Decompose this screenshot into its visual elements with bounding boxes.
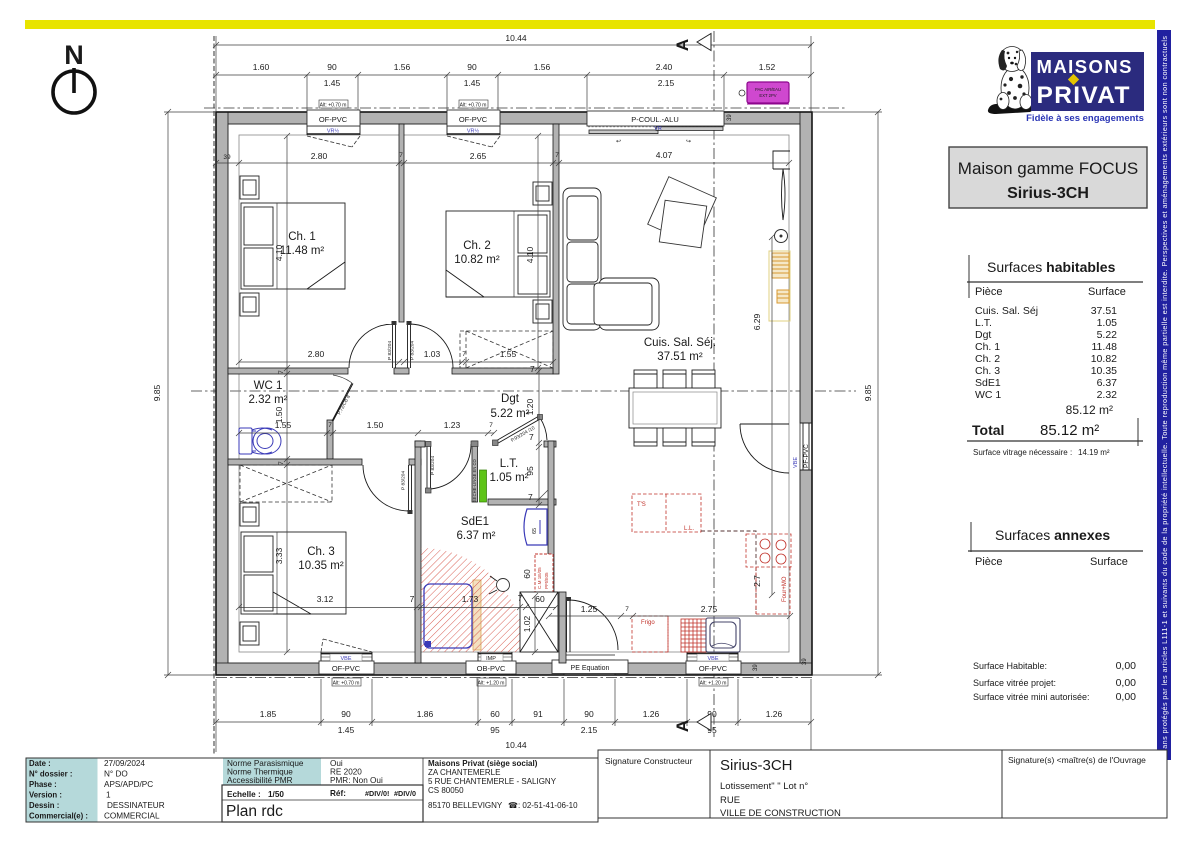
svg-text:7: 7: [328, 422, 332, 429]
svg-text:2.32 m²: 2.32 m²: [249, 394, 288, 406]
svg-text:7: 7: [489, 422, 493, 429]
svg-text:60: 60: [535, 594, 545, 604]
svg-text:1.85: 1.85: [260, 709, 277, 719]
svg-text:PRIVAT: PRIVAT: [1037, 82, 1130, 109]
svg-text:COMMERCIAL: COMMERCIAL: [104, 812, 160, 821]
svg-text:1.45: 1.45: [324, 78, 341, 88]
svg-text:0,00: 0,00: [1116, 660, 1137, 672]
svg-text:SdE1: SdE1: [461, 516, 489, 528]
svg-text:1.55: 1.55: [500, 349, 517, 359]
svg-text:85.12 m²: 85.12 m²: [1040, 422, 1099, 439]
svg-text:Surface vitrage nécessaire :: Surface vitrage nécessaire :: [973, 448, 1072, 457]
svg-text:RUE: RUE: [720, 795, 740, 806]
svg-text:10.82: 10.82: [1091, 353, 1117, 365]
svg-text:5.22: 5.22: [1097, 329, 1118, 341]
svg-text:14.19 m²: 14.19 m²: [1078, 448, 1110, 457]
svg-text:Ch. 3: Ch. 3: [975, 365, 1000, 377]
svg-text:PE Equation: PE Equation: [571, 665, 610, 672]
svg-text:PMR: Non Oui: PMR: Non Oui: [330, 776, 383, 785]
svg-text:95: 95: [490, 725, 500, 735]
svg-text:N° DO: N° DO: [104, 770, 128, 779]
svg-text:OF-PVC: OF-PVC: [332, 664, 361, 673]
svg-text:1.56: 1.56: [534, 62, 551, 72]
svg-text:2.32: 2.32: [1097, 389, 1118, 401]
svg-text:9.85: 9.85: [863, 384, 873, 401]
svg-text:7: 7: [555, 152, 559, 159]
svg-text:3.33: 3.33: [274, 547, 284, 564]
svg-text:Total: Total: [972, 422, 1004, 438]
svg-text:T'S: T'S: [637, 502, 646, 508]
svg-text:10.35: 10.35: [1091, 365, 1117, 377]
svg-text:Frigo: Frigo: [641, 620, 655, 626]
svg-text:Fidèle à ses engagements: Fidèle à ses engagements: [1026, 113, 1144, 124]
svg-text:P 83/204: P 83/204: [387, 341, 393, 360]
svg-text:Surface Habitable:: Surface Habitable:: [973, 661, 1047, 671]
svg-text:90: 90: [584, 709, 594, 719]
svg-text:1.05: 1.05: [1097, 317, 1118, 329]
svg-text:2.80: 2.80: [308, 349, 325, 359]
svg-text:MAISONS: MAISONS: [1037, 56, 1132, 77]
svg-text:5 RUE CHANTEMERLE - SALIGNY: 5 RUE CHANTEMERLE - SALIGNY: [428, 777, 557, 786]
svg-text:SECHE-LINGE EN CO: SECHE-LINGE EN CO: [472, 458, 477, 502]
svg-text:1.73: 1.73: [462, 594, 479, 604]
svg-text:WC 1: WC 1: [254, 380, 283, 392]
svg-text:1.56: 1.56: [394, 62, 411, 72]
svg-text:1.03: 1.03: [424, 349, 441, 359]
svg-text:CS 80050: CS 80050: [428, 786, 464, 795]
svg-text:0,00: 0,00: [1116, 677, 1137, 689]
svg-text:Surface vitrée mini autorisée:: Surface vitrée mini autorisée:: [973, 692, 1090, 702]
svg-text:PAC AIR/EAU: PAC AIR/EAU: [755, 87, 781, 92]
svg-text:39: 39: [802, 658, 808, 665]
svg-text:Alt: +0.70 m: Alt: +0.70 m: [320, 103, 347, 109]
svg-text:PFt/E05: PFt/E05: [544, 572, 549, 589]
svg-text:Surface: Surface: [1088, 286, 1126, 298]
svg-text:39: 39: [727, 114, 733, 121]
svg-text:85.12 m²: 85.12 m²: [1066, 403, 1113, 417]
svg-text:1.50: 1.50: [367, 420, 384, 430]
svg-text:0,00: 0,00: [1116, 691, 1137, 703]
svg-text:Ch. 2: Ch. 2: [975, 353, 1000, 365]
svg-text:OF-PVC: OF-PVC: [319, 115, 348, 124]
svg-text:39: 39: [223, 154, 231, 161]
svg-text:Plan rdc: Plan rdc: [226, 803, 283, 820]
svg-text:60: 60: [490, 709, 500, 719]
svg-text:10.82 m²: 10.82 m²: [454, 254, 500, 266]
svg-text:VR½: VR½: [327, 128, 340, 135]
svg-text:C.M 1E/05: C.M 1E/05: [537, 567, 542, 589]
svg-text:A: A: [673, 720, 692, 732]
svg-text:Four+MO: Four+MO: [782, 576, 788, 602]
svg-text:1.86: 1.86: [417, 709, 434, 719]
svg-text:9.85: 9.85: [152, 384, 162, 401]
svg-text:Alt: +1.20 m: Alt: +1.20 m: [478, 681, 505, 687]
svg-text:11.48 m²: 11.48 m²: [280, 245, 325, 257]
svg-text:VR½: VR½: [467, 128, 480, 135]
svg-text:6.29: 6.29: [752, 313, 762, 330]
svg-text:1.05 m²: 1.05 m²: [490, 472, 529, 484]
svg-text:P 83/204: P 83/204: [401, 471, 407, 490]
svg-text:1.25: 1.25: [581, 604, 598, 614]
svg-text:VILLE DE CONSTRUCTION: VILLE DE CONSTRUCTION: [720, 808, 841, 819]
svg-text:Cuis. Sal. Séj.: Cuis. Sal. Séj.: [644, 337, 716, 349]
svg-text:39: 39: [753, 664, 759, 671]
svg-text:A: A: [673, 39, 692, 51]
svg-text:Signature Constructeur: Signature Constructeur: [605, 756, 693, 766]
svg-text:7: 7: [410, 594, 415, 604]
svg-text:4.07: 4.07: [656, 150, 673, 160]
svg-text:7: 7: [529, 432, 534, 442]
svg-text:Ch. 2: Ch. 2: [463, 240, 491, 252]
svg-text:7: 7: [278, 370, 285, 374]
svg-text:Phase :: Phase :: [29, 780, 57, 789]
svg-text:3.12: 3.12: [317, 594, 334, 604]
svg-text:7: 7: [518, 593, 523, 603]
svg-text:7: 7: [625, 606, 629, 613]
svg-text:N° dossier :: N° dossier :: [29, 770, 72, 779]
svg-text:APS/APD/PC: APS/APD/PC: [104, 780, 153, 789]
svg-text:VBE: VBE: [793, 457, 799, 468]
svg-text:Pièce: Pièce: [975, 556, 1003, 568]
svg-text:Dgt: Dgt: [975, 329, 991, 341]
svg-text:90: 90: [327, 62, 337, 72]
svg-text:65: 65: [532, 528, 538, 534]
svg-text:Commercial(e) :: Commercial(e) :: [29, 812, 88, 821]
svg-text:2.15: 2.15: [658, 78, 675, 88]
svg-text:5.22 m²: 5.22 m²: [491, 408, 530, 420]
svg-text:IMP: IMP: [486, 656, 496, 662]
svg-text:7: 7: [399, 152, 403, 159]
svg-text:2.75: 2.75: [701, 604, 718, 614]
svg-text:37.51 m²: 37.51 m²: [657, 351, 703, 363]
svg-text:P-COUL.-ALU: P-COUL.-ALU: [631, 115, 679, 124]
svg-text:4.10: 4.10: [274, 244, 284, 261]
svg-text:6.37 m²: 6.37 m²: [457, 530, 496, 542]
svg-text:Ch. 1: Ch. 1: [975, 341, 1000, 353]
svg-text:2.40: 2.40: [656, 62, 673, 72]
svg-text:Echelle :: Echelle :: [227, 790, 261, 799]
svg-text:VBE: VBE: [340, 656, 351, 662]
svg-text:27/09/2024: 27/09/2024: [104, 759, 145, 768]
svg-text:Surfaces habitables: Surfaces habitables: [987, 259, 1116, 275]
svg-text:OF-PVC: OF-PVC: [459, 115, 488, 124]
svg-text:4.10: 4.10: [525, 246, 535, 263]
svg-text:Date :: Date :: [29, 759, 51, 768]
svg-text:6.37: 6.37: [1097, 377, 1118, 389]
svg-text:Plans protégés par les article: Plans protégés par les articles L111-1 e…: [1160, 36, 1169, 756]
svg-text:1.50: 1.50: [274, 406, 284, 423]
svg-text:90: 90: [341, 709, 351, 719]
svg-text:Cuis. Sal. Séj: Cuis. Sal. Séj: [975, 305, 1038, 317]
svg-text:↩: ↩: [616, 139, 621, 145]
svg-text:7: 7: [462, 351, 466, 358]
svg-text:2.15: 2.15: [581, 725, 598, 735]
svg-text:☎: 02-51-41-06-10: ☎: 02-51-41-06-10: [508, 801, 578, 810]
svg-text:1.23: 1.23: [444, 420, 461, 430]
svg-text:Pièce: Pièce: [975, 286, 1003, 298]
svg-text:60: 60: [522, 569, 532, 579]
svg-text:1.26: 1.26: [766, 709, 783, 719]
svg-text:Alt: +0.70 m: Alt: +0.70 m: [460, 103, 487, 109]
svg-text:Maisons Privat (siège social): Maisons Privat (siège social): [428, 759, 538, 768]
svg-text:10.44: 10.44: [505, 740, 527, 750]
svg-text:L.L.: L.L.: [684, 526, 694, 532]
svg-text:Surfaces annexes: Surfaces annexes: [995, 527, 1110, 543]
svg-text:Accessibilité PMR: Accessibilité PMR: [227, 776, 293, 785]
svg-text:EXT 2PV: EXT 2PV: [759, 93, 776, 98]
svg-text:OF-PVC: OF-PVC: [699, 664, 728, 673]
svg-text:10.35 m²: 10.35 m²: [298, 560, 344, 572]
svg-text:1.20: 1.20: [525, 398, 535, 415]
svg-text:91: 91: [533, 709, 543, 719]
svg-text:95: 95: [525, 466, 535, 476]
svg-text:1/50: 1/50: [268, 790, 284, 799]
svg-text:7: 7: [530, 364, 535, 374]
svg-text:Alt: +1.20 m: Alt: +1.20 m: [700, 681, 727, 687]
svg-text:L.T.: L.T.: [975, 317, 992, 329]
svg-text:37.51: 37.51: [1091, 305, 1117, 317]
svg-text:90: 90: [467, 62, 477, 72]
svg-text:#DIV/0!: #DIV/0!: [365, 789, 389, 798]
svg-text:7: 7: [278, 461, 285, 465]
svg-text:1.45: 1.45: [464, 78, 481, 88]
svg-text:1.26: 1.26: [643, 709, 660, 719]
svg-text:11.48: 11.48: [1092, 341, 1118, 353]
svg-text:2.80: 2.80: [311, 151, 328, 161]
svg-text:Réf:: Réf:: [330, 789, 346, 798]
svg-text:Dgt: Dgt: [501, 393, 520, 405]
svg-text:VBE: VBE: [707, 656, 718, 662]
svg-text:85170 BELLEVIGNY: 85170 BELLEVIGNY: [428, 801, 503, 810]
svg-text:Version :: Version :: [29, 791, 62, 800]
svg-text:N: N: [64, 40, 84, 70]
svg-text:DESSINATEUR: DESSINATEUR: [107, 801, 165, 810]
svg-text:Lotissement" " Lot n°: Lotissement" " Lot n°: [720, 781, 808, 792]
svg-text:Surface: Surface: [1090, 556, 1128, 568]
svg-text:P 83/204: P 83/204: [410, 341, 416, 360]
svg-text:WC 1: WC 1: [975, 389, 1001, 401]
svg-text:Surface vitrée projet:: Surface vitrée projet:: [973, 678, 1056, 688]
svg-text:1.60: 1.60: [253, 62, 270, 72]
svg-text:1: 1: [106, 791, 111, 800]
svg-text:2.7: 2.7: [752, 575, 762, 587]
svg-text:ZA CHANTEMERLE: ZA CHANTEMERLE: [428, 768, 500, 777]
svg-text:SdE1: SdE1: [975, 377, 1001, 389]
svg-text:1.52: 1.52: [759, 62, 776, 72]
svg-text:1.45: 1.45: [338, 725, 355, 735]
svg-text:L.T.: L.T.: [500, 458, 519, 470]
svg-text:2.65: 2.65: [470, 151, 487, 161]
svg-text:↪: ↪: [686, 139, 691, 145]
svg-text:OB-PVC: OB-PVC: [477, 664, 506, 673]
svg-text:1.02: 1.02: [522, 615, 532, 632]
svg-text:#DIV/0: #DIV/0: [394, 789, 416, 798]
svg-text:Ch. 1: Ch. 1: [288, 231, 316, 243]
svg-text:7: 7: [528, 492, 533, 502]
svg-text:Ch. 3: Ch. 3: [307, 546, 335, 558]
svg-text:Maison gamme FOCUS: Maison gamme FOCUS: [958, 159, 1138, 178]
svg-text:Sirius-3CH: Sirius-3CH: [720, 757, 793, 774]
svg-text:PF-PVC: PF-PVC: [803, 444, 810, 468]
svg-text:Dessin :: Dessin :: [29, 801, 59, 810]
svg-text:P 83/204: P 83/204: [430, 456, 436, 475]
svg-text:VR: VR: [654, 126, 662, 132]
svg-text:Alt: +0.70 m: Alt: +0.70 m: [333, 681, 360, 687]
svg-text:10.44: 10.44: [505, 33, 527, 43]
svg-text:Sirius-3CH: Sirius-3CH: [1007, 185, 1089, 202]
svg-text:Signature(s) <maître(s) de l'O: Signature(s) <maître(s) de l'Ouvrage: [1008, 755, 1146, 765]
